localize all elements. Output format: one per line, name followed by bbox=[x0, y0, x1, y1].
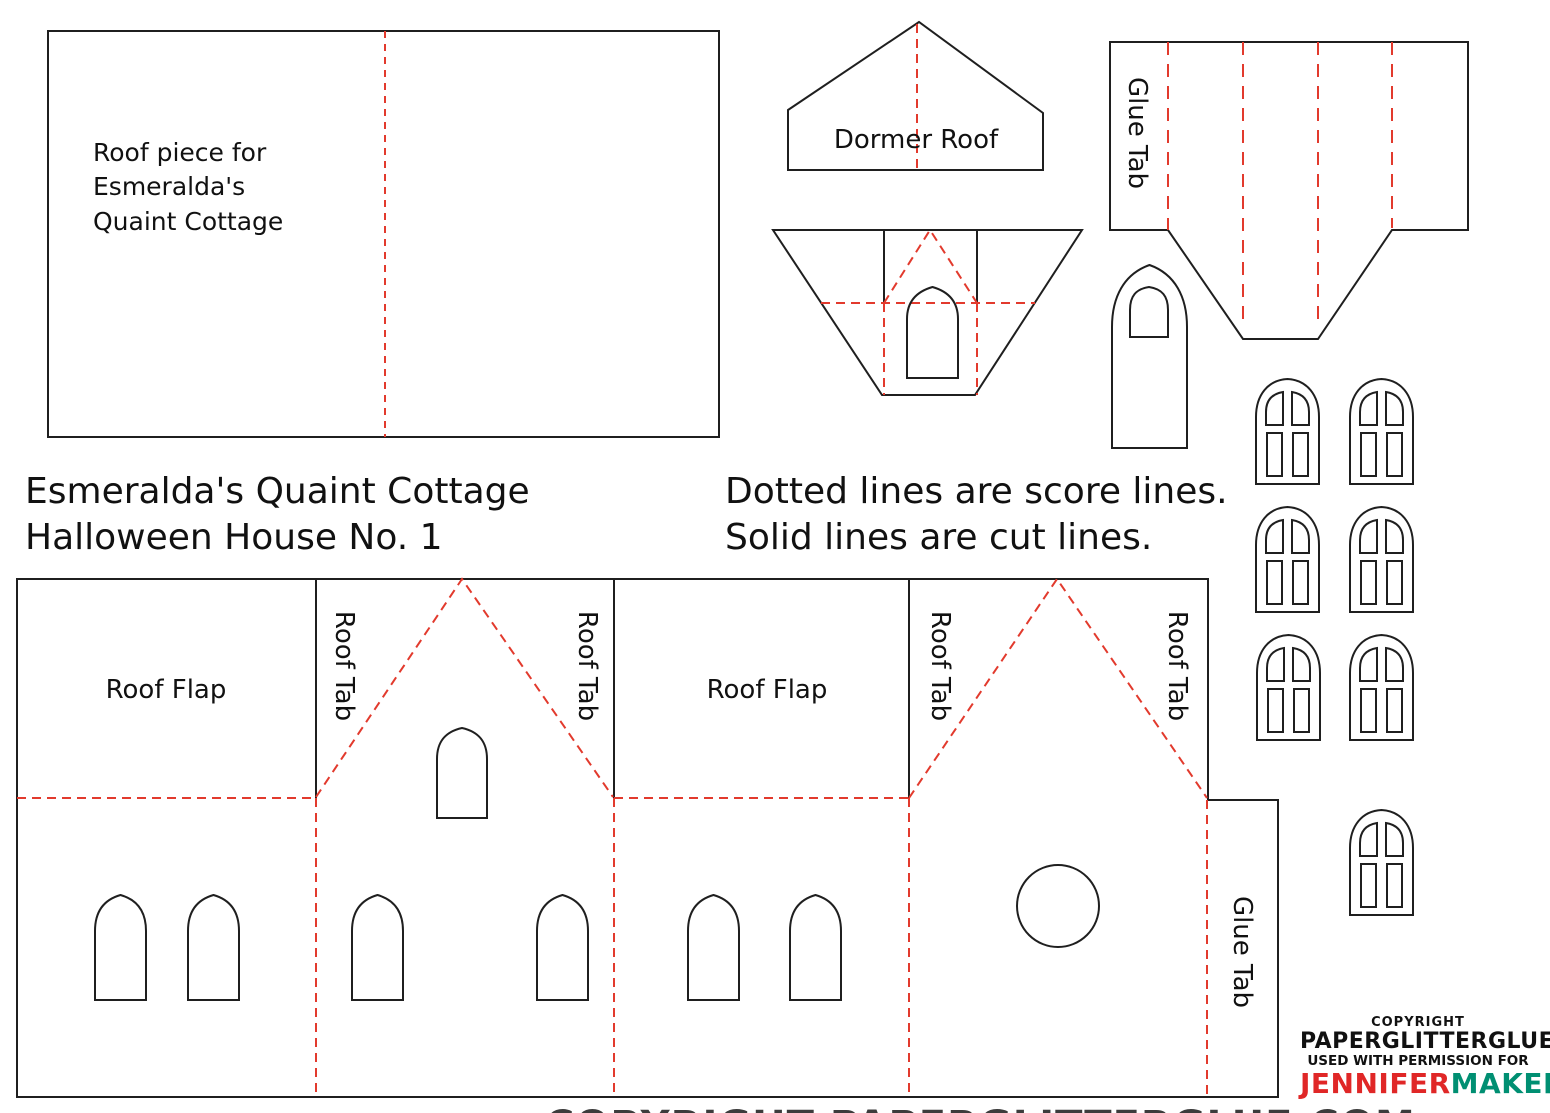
copyright-word: COPYRIGHT bbox=[1300, 1016, 1536, 1030]
template-sheet: Roof piece for Esmeralda's Quaint Cottag… bbox=[0, 0, 1550, 1113]
dormer-roof-piece: Dormer Roof bbox=[788, 22, 1043, 170]
wall-window-cutout-3 bbox=[352, 895, 403, 1000]
legend: Dotted lines are score lines. Solid line… bbox=[725, 471, 1228, 558]
window-piece-6 bbox=[1350, 635, 1413, 740]
roof-flap-label-1: Roof Flap bbox=[106, 675, 227, 705]
roof-tab-label-3: Roof Tab bbox=[925, 611, 955, 721]
window-piece-3 bbox=[1256, 507, 1319, 612]
copyright-paperglitterglue: PAPERGLITTERGLUE bbox=[1300, 1030, 1536, 1054]
roof-piece-label-line3: Quaint Cottage bbox=[93, 207, 283, 236]
wall-window-cutout-2 bbox=[188, 895, 239, 1000]
window-pieces bbox=[1256, 379, 1413, 915]
roof-flap-label-2: Roof Flap bbox=[707, 675, 828, 705]
legend-line1: Dotted lines are score lines. bbox=[725, 471, 1228, 512]
sheet-title-line2: Halloween House No. 1 bbox=[25, 517, 443, 558]
roof-tab-label-1: Roof Tab bbox=[329, 611, 359, 721]
roof-tab-label-2: Roof Tab bbox=[572, 611, 602, 721]
door-window-cutout bbox=[1130, 287, 1168, 337]
dormer-roof-label: Dormer Roof bbox=[834, 125, 999, 155]
roof-piece-label-line2: Esmeralda's bbox=[93, 172, 245, 201]
glue-tab-strip-label: Glue Tab bbox=[1122, 77, 1152, 189]
roof-piece-label-line1: Roof piece for bbox=[93, 138, 267, 167]
wall-window-cutout-4 bbox=[537, 895, 588, 1000]
wall-window-cutout-1 bbox=[95, 895, 146, 1000]
roof-piece: Roof piece for Esmeralda's Quaint Cottag… bbox=[48, 31, 719, 437]
round-window-cutout bbox=[1017, 865, 1099, 947]
wall-window-cutout-6 bbox=[790, 895, 841, 1000]
copyright-block: COPYRIGHT PAPERGLITTERGLUE USED WITH PER… bbox=[1300, 1016, 1536, 1100]
roof-tab-label-4: Roof Tab bbox=[1162, 611, 1192, 721]
bottom-copyright-cutoff: COPYRIGHT PAPERGLITTERGLUE.COM bbox=[545, 1103, 1416, 1113]
dormer-front-piece bbox=[773, 230, 1082, 395]
gable-score-line-1 bbox=[316, 579, 613, 797]
window-piece-2 bbox=[1350, 379, 1413, 484]
window-piece-7 bbox=[1350, 810, 1413, 915]
legend-line2: Solid lines are cut lines. bbox=[725, 517, 1152, 558]
brand-name-maker: MAKER bbox=[1451, 1067, 1550, 1100]
window-piece-1 bbox=[1256, 379, 1319, 484]
attic-window-cutout bbox=[437, 728, 487, 818]
dormer-front-gable-score-line bbox=[884, 230, 977, 303]
door-outline bbox=[1112, 265, 1187, 448]
door-piece bbox=[1112, 265, 1187, 448]
sheet-title: Esmeralda's Quaint Cottage Halloween Hou… bbox=[25, 471, 530, 558]
sheet-title-line1: Esmeralda's Quaint Cottage bbox=[25, 471, 530, 512]
house-body-piece: Roof Flap Roof Flap Roof Tab Roof Tab Ro… bbox=[17, 579, 1278, 1097]
window-piece-4 bbox=[1350, 507, 1413, 612]
brand-name-jennifer: JENNIFER bbox=[1300, 1067, 1451, 1100]
glue-tab-label: Glue Tab bbox=[1227, 896, 1257, 1008]
house-body-outline bbox=[17, 579, 1278, 1097]
dormer-window-cutout bbox=[907, 287, 958, 378]
wall-window-cutout-5 bbox=[688, 895, 739, 1000]
dormer-front-outline bbox=[773, 230, 1082, 395]
papercraft-template-drawing: Roof piece for Esmeralda's Quaint Cottag… bbox=[0, 0, 1550, 1113]
copyright-jennifermaker: JENNIFERMAKER bbox=[1300, 1069, 1536, 1100]
window-piece-5 bbox=[1257, 635, 1320, 740]
